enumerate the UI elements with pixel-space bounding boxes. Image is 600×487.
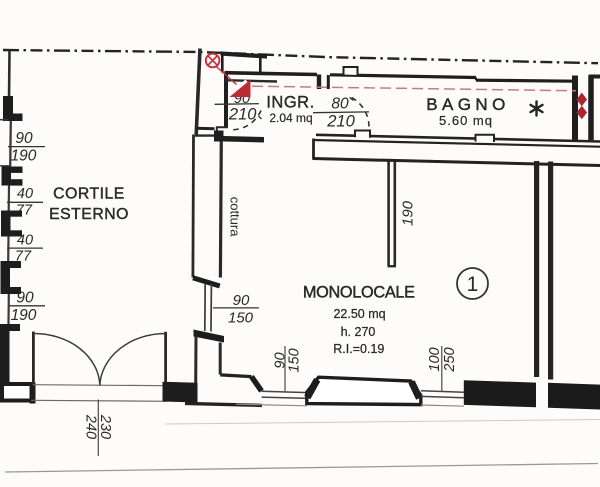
svg-text:90: 90 <box>233 292 250 309</box>
svg-text:100: 100 <box>427 347 443 371</box>
svg-text:R.I.=0.19: R.I.=0.19 <box>333 342 384 356</box>
svg-text:190: 190 <box>11 307 37 324</box>
svg-text:40: 40 <box>17 233 33 249</box>
svg-text:250: 250 <box>442 347 458 372</box>
svg-text:150: 150 <box>228 310 254 327</box>
svg-text:190: 190 <box>11 148 37 165</box>
svg-text:240: 240 <box>83 414 99 439</box>
svg-text:BAGNO: BAGNO <box>426 95 509 114</box>
svg-text:ESTERNO: ESTERNO <box>49 206 129 223</box>
svg-text:90: 90 <box>15 130 33 147</box>
svg-text:1: 1 <box>467 273 479 296</box>
svg-text:90: 90 <box>16 289 34 306</box>
svg-text:MONOLOCALE: MONOLOCALE <box>303 284 415 302</box>
svg-text:80: 80 <box>331 96 349 113</box>
svg-text:cottura: cottura <box>228 197 243 238</box>
svg-text:INGR.: INGR. <box>266 94 314 112</box>
svg-text:190: 190 <box>399 200 416 226</box>
svg-text:5.60 mq: 5.60 mq <box>439 113 493 128</box>
svg-text:150: 150 <box>286 348 302 372</box>
svg-text:210: 210 <box>326 113 355 131</box>
svg-text:230: 230 <box>97 414 113 439</box>
svg-text:h. 270: h. 270 <box>341 325 376 339</box>
svg-text:CORTILE: CORTILE <box>53 186 125 203</box>
svg-text:2.04 mq: 2.04 mq <box>269 111 312 125</box>
svg-text:40: 40 <box>17 186 33 202</box>
svg-text:22.50 mq: 22.50 mq <box>333 307 385 321</box>
